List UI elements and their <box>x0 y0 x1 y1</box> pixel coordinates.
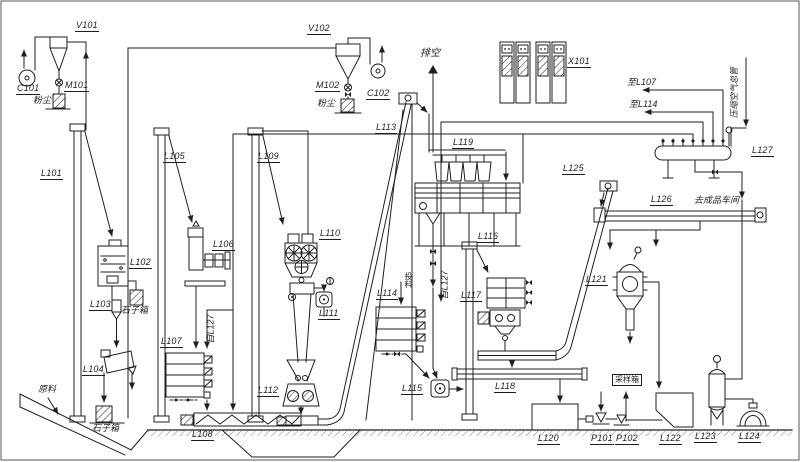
pump-p101 <box>593 392 617 424</box>
label-l121: L121 <box>585 275 608 286</box>
label-l108: L108 <box>191 430 214 441</box>
magnet-l103 <box>112 300 121 347</box>
label-l124: L124 <box>738 432 761 443</box>
stone-box-lower <box>96 406 112 422</box>
thrower-l115 <box>431 380 463 397</box>
drag-conveyor-l118 <box>452 368 587 402</box>
label-l126: L126 <box>650 195 673 206</box>
diagram-linework <box>0 0 800 462</box>
pump-p102 <box>614 415 662 425</box>
label-l111: L111 <box>318 309 340 320</box>
inclined-conveyor-l125 <box>556 181 617 360</box>
annotation-vent: 排空 <box>420 49 440 59</box>
label-l117: L117 <box>460 291 482 302</box>
label-x101: X101 <box>567 57 591 68</box>
label-l102: L102 <box>129 258 152 269</box>
annotation-raw-material: 原料 <box>38 385 56 394</box>
annotation-to-l114: 至L114 <box>629 100 657 109</box>
bucket-elevator-l109 <box>248 128 308 422</box>
label-p101: P101 <box>590 434 614 445</box>
hopper-l122 <box>656 393 693 427</box>
label-l112: L112 <box>257 386 279 397</box>
label-l107: L107 <box>160 337 183 348</box>
receiver-l121 <box>613 247 659 388</box>
bucket-elevator-l116 <box>462 242 488 420</box>
annotation-dust-left: 粉尘 <box>33 96 51 105</box>
annotation-compressed-air: 压缩空气总管 <box>730 66 739 118</box>
vent-stack <box>429 66 437 152</box>
annotation-stone-box-lower: 石子箱 <box>92 424 119 433</box>
mixer-l117 <box>478 278 556 367</box>
crumbler-l110 <box>285 234 334 362</box>
fan-c102 <box>371 46 385 78</box>
label-l125: L125 <box>562 164 585 175</box>
batching-bins-l107 <box>166 353 212 410</box>
label-m101: M101 <box>64 81 89 92</box>
label-c102: C102 <box>366 89 390 100</box>
pellet-mill-l112 <box>277 360 319 425</box>
label-l116: L116 <box>477 232 499 243</box>
control-cabinets-x101 <box>500 42 566 103</box>
label-l114: L114 <box>376 289 398 300</box>
bucket-elevator-l101 <box>70 124 112 422</box>
annotation-stone-box-upper: 石子箱 <box>121 306 148 315</box>
inclined-conveyor-l113 <box>318 93 429 425</box>
air-tank-l123 <box>709 356 753 426</box>
stone-box-upper <box>130 290 143 305</box>
label-l123: L123 <box>694 432 717 443</box>
fan-c101 <box>19 37 50 86</box>
annotation-from-l127-left: 自L127 <box>207 314 216 344</box>
tank-l120 <box>532 404 593 430</box>
annotation-to-l107: 至L107 <box>627 78 656 87</box>
label-l127: L127 <box>751 146 774 157</box>
bucket-elevator-l105 <box>154 128 192 422</box>
label-l120: L120 <box>537 434 560 445</box>
label-l118: L118 <box>494 382 516 393</box>
label-c101: C101 <box>16 84 40 95</box>
annotation-from-l127-right: 自L127 <box>441 270 450 300</box>
conveyor-l126 <box>594 208 766 249</box>
raw-material-arrow <box>48 398 58 414</box>
annotation-to-workshop: 去成品车间 <box>694 196 739 205</box>
annotation-sampling-box: 采样箱 <box>612 374 642 386</box>
label-l113: L113 <box>375 123 397 134</box>
label-l105: L105 <box>163 152 186 163</box>
process-flow-diagram: V101 C101 M101 V102 M102 C102 X101 L101 … <box>0 0 800 462</box>
annotation-dust-mid: 粉尘 <box>317 99 335 108</box>
label-l106: L106 <box>212 240 235 251</box>
cooler-l119 <box>415 134 523 378</box>
label-l101: L101 <box>40 169 63 180</box>
label-m102: M102 <box>315 81 340 92</box>
label-v101: V101 <box>75 21 99 32</box>
dust-box-m102 <box>335 99 361 113</box>
label-l119: L119 <box>452 138 474 149</box>
label-p102: P102 <box>615 434 639 445</box>
label-l115: L115 <box>401 384 423 395</box>
blower-l124 <box>737 403 769 426</box>
label-v102: V102 <box>307 24 331 35</box>
label-l103: L103 <box>89 300 112 311</box>
annotation-manual-feed: 投料 <box>404 272 412 288</box>
label-l109: L109 <box>257 152 280 163</box>
ground <box>20 394 792 457</box>
label-l104: L104 <box>82 365 105 376</box>
label-l122: L122 <box>659 434 682 445</box>
label-l110: L110 <box>319 229 341 240</box>
